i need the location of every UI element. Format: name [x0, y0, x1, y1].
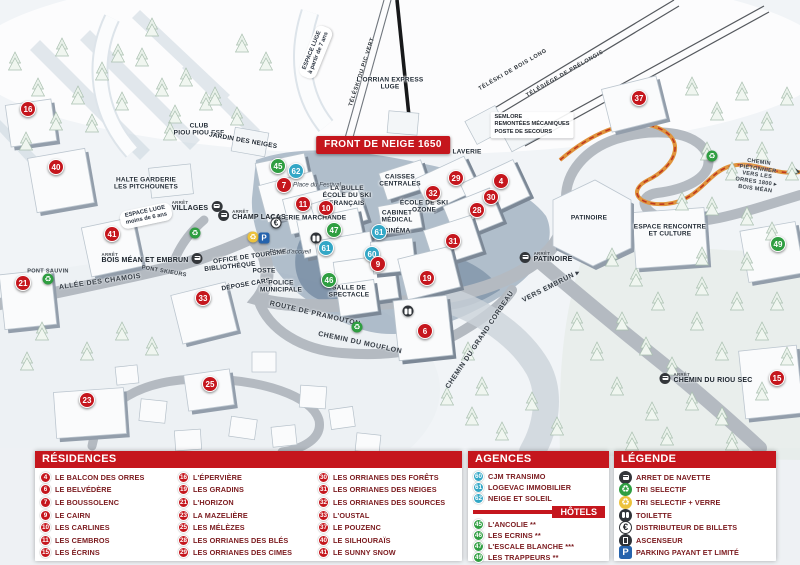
person-glyph [622, 512, 624, 518]
legend-item-label: LES TRAPPEURS ** [488, 553, 559, 562]
hotels-header-line [473, 510, 552, 514]
legend-item: 46LES ECRINS ** [473, 530, 605, 541]
bus-icon [520, 252, 531, 263]
map-label: L'ORRIAN EXPRESS LUGE [357, 77, 424, 92]
legend-item-label: L'HORIZON [193, 498, 234, 507]
marker-number: 45 [473, 519, 484, 530]
map-marker-61: 61 [318, 240, 334, 256]
map-marker-49: 49 [770, 236, 786, 252]
map-marker-16: 16 [20, 101, 36, 117]
map-label: HALTE GARDERIE LES PITCHOUNETS [114, 177, 178, 192]
legend-item-label: LE BALCON DES ORRES [55, 473, 144, 482]
resort-map-page: FRONT DE NEIGE 1650ESPACE LUGE à partir … [0, 0, 800, 565]
legend-item-label: LES ORRIANES DES BLÉS [193, 536, 288, 545]
marker-number: 25 [178, 522, 189, 533]
map-label: VERS EMBRUN ▸ [521, 268, 581, 304]
map-marker-21: 21 [15, 275, 31, 291]
map-label: JARDIN DES NEIGES [208, 131, 277, 150]
map-marker-4: 4 [493, 173, 509, 189]
map-marker-19: 19 [419, 270, 435, 286]
map-label: ESPACE RENCONTRE ET CULTURE [634, 224, 706, 239]
legend-item-label: LES ORRIANES DES SOURCES [333, 498, 445, 507]
map-label: LAVERIE [452, 148, 481, 155]
legend-item: 30LES ORRIANES DES FORÊTS [318, 471, 459, 484]
map-label: DÉPOSE CARS [221, 277, 271, 293]
marker-number: 41 [318, 547, 329, 558]
legend-item-label: LES ÉCRINS [55, 548, 100, 557]
map-marker-32: 32 [425, 185, 441, 201]
map-marker-10: 10 [318, 200, 334, 216]
map-label: ROUTE DE PRAMOUTON [269, 300, 361, 328]
map-label: CABINET MÉDICAL [381, 210, 412, 225]
map-label: CINÉMA [384, 227, 411, 234]
legend-item: 7LE BOUSSOLENC [40, 496, 178, 509]
map-label: Place d'accueil [269, 249, 311, 256]
recycle-icon: ♻ [619, 483, 632, 496]
bus-stop-label: PATINOIRE [534, 256, 573, 263]
legend-item: 15LES ÉCRINS [40, 547, 178, 560]
person-glyph [405, 308, 407, 314]
legend-item: 19LES GRADINS [178, 484, 318, 497]
map-marker-62: 62 [288, 163, 304, 179]
map-marker-15: 15 [769, 370, 785, 386]
marker-number: 31 [318, 484, 329, 495]
elevator-cab-glyph [623, 537, 628, 544]
legend-item-label: PARKING PAYANT ET LIMITÉ [636, 548, 739, 557]
recycle-icon: ♻ [43, 274, 54, 285]
map-label: POLICE MUNICIPALE [260, 280, 302, 295]
legend-item: 16L'ÉPERVIÈRE [178, 471, 318, 484]
bus-glyph [194, 256, 200, 261]
residences-column-2: 16L'ÉPERVIÈRE19LES GRADINS21L'HORIZON23L… [178, 471, 318, 559]
marker-number: 47 [473, 541, 484, 552]
legend-item-label: TRI SELECTIF [636, 485, 686, 494]
panel-residences-title: RÉSIDENCES [35, 451, 462, 468]
legend-item-label: L'OUSTAL [333, 511, 369, 520]
legend-item: PPARKING PAYANT ET LIMITÉ [619, 547, 772, 560]
marker-number: 61 [473, 482, 484, 493]
map-marker-47: 47 [326, 222, 342, 238]
bus-icon [218, 210, 229, 221]
map-marker-46: 46 [321, 272, 337, 288]
legend-item: 28LES ORRIANES DES BLÉS [178, 534, 318, 547]
legend-item: ASCENSEUR [619, 534, 772, 547]
recycle-icon: ♻ [352, 322, 363, 333]
map-marker-61: 61 [371, 224, 387, 240]
recycle-icon: ♻ [190, 228, 201, 239]
legend-item: 60CJM TRANSIMO [473, 471, 605, 482]
legend-item-label: LE CAIRN [55, 511, 90, 520]
legend-item-label: LES ORRIANES DES NEIGES [333, 485, 437, 494]
parking-icon: P [619, 546, 632, 559]
marker-number: 46 [473, 530, 484, 541]
panel-residences: RÉSIDENCES 4LE BALCON DES ORRES6LE BELVÉ… [35, 451, 462, 561]
map-label: FRONT DE NEIGE 1650 [316, 136, 450, 154]
bus-glyph [662, 376, 668, 381]
marker-number: 7 [40, 497, 51, 508]
legend-item: 4LE BALCON DES ORRES [40, 471, 178, 484]
bus-glyph [214, 204, 220, 209]
marker-number: 10 [40, 522, 51, 533]
bus-icon [211, 201, 222, 212]
legend-item-label: LES ORRIANES DES CIMES [193, 548, 292, 557]
legend-item: 25LES MÉLÈZES [178, 521, 318, 534]
bus-stop-caption: ARRÊT [172, 200, 209, 205]
hotels-header: HÔTELS [473, 506, 605, 518]
legend-item: 6LE BELVÉDÈRE [40, 484, 178, 497]
map-marker-31: 31 [445, 233, 461, 249]
map-label: ALLÉE DES CHAMOIS [59, 273, 142, 291]
map-label: OFFICE DE TOURISME [213, 248, 288, 266]
toilet-icon [619, 509, 632, 522]
map-marker-41: 41 [104, 226, 120, 242]
panel-legende: LÉGENDE ARRET DE NAVETTE♻TRI SELECTIF♻TR… [614, 451, 776, 561]
bus-icon [659, 373, 670, 384]
panel-agences-title: AGENCES IMMOBILIÈRES [468, 451, 609, 468]
legend-item-label: ARRET DE NAVETTE [636, 473, 710, 482]
legend-item-label: LES CEMBROS [55, 536, 110, 545]
map-marker-40: 40 [48, 159, 64, 175]
map-marker-9: 9 [370, 256, 386, 272]
map-label: BIBLIOTHÈQUE [204, 261, 256, 274]
map-label: POSTE [252, 267, 275, 274]
parking-icon: P [259, 233, 270, 244]
marker-number: 23 [178, 510, 189, 521]
bus-stop-caption: ARRÊT [232, 209, 286, 214]
hotels-list: 45L'ANCOLIE **46LES ECRINS **47L'ESCALE … [473, 519, 605, 564]
bus-glyph [522, 255, 528, 260]
legend-item: 41LE SUNNY SNOW [318, 547, 459, 560]
marker-number: 9 [40, 510, 51, 521]
residences-list: 4LE BALCON DES ORRES6LE BELVÉDÈRE7LE BOU… [35, 468, 462, 559]
legend-item-label: LES MÉLÈZES [193, 523, 245, 532]
legend-item: 37LE POUZENC [318, 521, 459, 534]
legend-item-label: LA MAZELIÈRE [193, 511, 248, 520]
legend-item: TOILETTE [619, 509, 772, 522]
map-label: SEMLORE REMONTÉES MÉCANIQUES POSTE DE SE… [491, 112, 574, 138]
marker-number: 62 [473, 493, 484, 504]
legend-item-label: LOGEVAC IMMOBILIER [488, 483, 571, 492]
bus-stop-caption: ARRÊT [101, 252, 188, 257]
legend-item-label: DISTRIBUTEUR DE BILLETS [636, 523, 737, 532]
legend-item-label: LES CARLINES [55, 523, 110, 532]
legend-item-label: TOILETTE [636, 511, 672, 520]
agences-list: 60CJM TRANSIMO61LOGEVAC IMMOBILIER62NEIG… [473, 471, 605, 505]
legend-item-label: NEIGE ET SOLEIL [488, 494, 552, 503]
legend-item-label: LE POUZENC [333, 523, 381, 532]
legend-item-label: L'ÉPERVIÈRE [193, 473, 242, 482]
marker-number: 32 [318, 497, 329, 508]
panel-agences-hotels: AGENCES IMMOBILIÈRES 60CJM TRANSIMO61LOG… [468, 451, 609, 561]
map-marker-6: 6 [417, 323, 433, 339]
legend-item: 49LES TRAPPEURS ** [473, 552, 605, 563]
legend-item: 31LES ORRIANES DES NEIGES [318, 484, 459, 497]
map-marker-30: 30 [483, 189, 499, 205]
bus-stop-text: ARRÊTCHEMIN DU RIOU SEC [673, 372, 752, 384]
map-marker-23: 23 [79, 392, 95, 408]
map-marker-37: 37 [631, 90, 647, 106]
legend-item-label: ASCENSEUR [636, 536, 683, 545]
legend-item: 33L'OUSTAL [318, 509, 459, 522]
marker-number: 33 [318, 510, 329, 521]
legend-item: 62NEIGE ET SOLEIL [473, 493, 605, 504]
map-label: TÉLÉSKI DU PIC VERT [348, 37, 376, 107]
marker-number: 40 [318, 535, 329, 546]
legend-item-label: LES ECRINS ** [488, 531, 541, 540]
atm-euro-icon: € [271, 218, 282, 229]
legend-item: 45L'ANCOLIE ** [473, 519, 605, 530]
recycle-icon: ♻ [707, 151, 718, 162]
bus-stop-text: ARRÊTBOIS MÉAN ET EMBRUN [101, 252, 188, 264]
map-label: CHEMIN DU MOUFLON [317, 331, 402, 356]
legende-list: ARRET DE NAVETTE♻TRI SELECTIF♻TRI SELECT… [614, 468, 776, 559]
elevator-icon [619, 534, 632, 547]
toilet-icon [403, 306, 414, 317]
panel-legende-title: LÉGENDE [614, 451, 776, 468]
person-glyph [317, 235, 319, 241]
map-label: PATINOIRE [571, 214, 607, 221]
legend-item-label: L'ANCOLIE ** [488, 520, 536, 529]
hotels-header-label: HÔTELS [552, 506, 605, 518]
legend-item-label: LE SILHOURAÏS [333, 536, 391, 545]
bus-stop-label: CHEMIN DU RIOU SEC [673, 377, 752, 384]
map-marker-33: 33 [195, 290, 211, 306]
marker-number: 4 [40, 472, 51, 483]
recycle-glass-icon: ♻ [619, 496, 632, 509]
marker-number: 21 [178, 497, 189, 508]
legend-item-label: LE SUNNY SNOW [333, 548, 396, 557]
marker-number: 49 [473, 552, 484, 563]
marker-number: 37 [318, 522, 329, 533]
bus-stop-text: ARRÊTVILLAGES [172, 200, 209, 212]
map-label: CHEMIN PIÉTONNIER VERS LES ORRES 1800 ▸ … [733, 156, 780, 195]
legend-item-label: LES ORRIANES DES FORÊTS [333, 473, 439, 482]
marker-number: 16 [178, 472, 189, 483]
legend-item-label: L'ESCALE BLANCHE *** [488, 542, 574, 551]
legend-item: ♻TRI SELECTIF + VERRE [619, 496, 772, 509]
map-marker-45: 45 [270, 158, 286, 174]
legend-item: ARRET DE NAVETTE [619, 471, 772, 484]
legend-item-label: LES GRADINS [193, 485, 244, 494]
map-label: CLUB PIOU PIOU ESF [174, 123, 225, 138]
person-glyph [313, 235, 315, 241]
marker-number: 11 [40, 535, 51, 546]
legend-item: 47L'ESCALE BLANCHE *** [473, 541, 605, 552]
marker-number: 15 [40, 547, 51, 558]
marker-number: 28 [178, 535, 189, 546]
map-label: SALLE DE SPECTACLE [329, 285, 370, 300]
map-label: ESPACE LUGE à partir de 7 ans [297, 23, 335, 80]
atm-euro-icon: € [619, 521, 632, 534]
map-label: ESPACE LUGE moins de 6 ans [119, 202, 174, 231]
bus-stop-bois-m-an-et-embrun: ARRÊTBOIS MÉAN ET EMBRUN [101, 252, 202, 264]
bus-stop-label: VILLAGES [172, 205, 209, 212]
legend-item: €DISTRIBUTEUR DE BILLETS [619, 521, 772, 534]
legend-item: 29LES ORRIANES DES CIMES [178, 547, 318, 560]
legend-item-label: LE BOUSSOLENC [55, 498, 119, 507]
residences-column-3: 30LES ORRIANES DES FORÊTS31LES ORRIANES … [318, 471, 459, 559]
bus-glyph [221, 213, 227, 218]
map-label: TÉLÉSIÈGE DE PRÉLONGIS [525, 49, 605, 98]
bus-stop-text: ARRÊTPATINOIRE [534, 251, 573, 263]
bus-icon [192, 253, 203, 264]
legend-item: 23LA MAZELIÈRE [178, 509, 318, 522]
marker-number: 6 [40, 484, 51, 495]
bus-stop-patinoire: ARRÊTPATINOIRE [520, 251, 573, 263]
legend-item: ♻TRI SELECTIF [619, 484, 772, 497]
map-label: TÉLÉSKI DE BOIS LONG [478, 48, 548, 92]
bus-icon [619, 471, 632, 484]
map-marker-7: 7 [276, 177, 292, 193]
bus-stop-chemin-du-riou-sec: ARRÊTCHEMIN DU RIOU SEC [659, 372, 752, 384]
map-label: CHEMIN DU GRAND CORBEAU [445, 290, 516, 390]
map-label: ÉCOLE DE SKI OZONE [400, 200, 448, 215]
legend-item: 40LE SILHOURAÏS [318, 534, 459, 547]
bus-stop-villages: ARRÊTVILLAGES [172, 200, 223, 212]
legend-item: 9LE CAIRN [40, 509, 178, 522]
legend-item: 11LES CEMBROS [40, 534, 178, 547]
marker-number: 30 [318, 472, 329, 483]
person-glyph [626, 512, 628, 518]
legend-item: 21L'HORIZON [178, 496, 318, 509]
bus-stop-caption: ARRÊT [534, 251, 573, 256]
marker-number: 29 [178, 547, 189, 558]
map-label: PONT SKIEURS [141, 265, 187, 280]
residences-column-1: 4LE BALCON DES ORRES6LE BELVÉDÈRE7LE BOU… [40, 471, 178, 559]
legend-item: 61LOGEVAC IMMOBILIER [473, 482, 605, 493]
map-marker-29: 29 [448, 170, 464, 186]
map-marker-11: 11 [295, 196, 311, 212]
map-label: CAISSES CENTRALES [379, 174, 421, 189]
bus-stop-caption: ARRÊT [673, 372, 752, 377]
legend-item: 32LES ORRIANES DES SOURCES [318, 496, 459, 509]
legend-item-label: TRI SELECTIF + VERRE [636, 498, 721, 507]
bus-stop-label: BOIS MÉAN ET EMBRUN [101, 257, 188, 264]
legend-item: 10LES CARLINES [40, 521, 178, 534]
legend-item-label: CJM TRANSIMO [488, 472, 546, 481]
legend-item-label: LE BELVÉDÈRE [55, 485, 112, 494]
recycle-glass-icon: ♻ [248, 232, 259, 243]
person-glyph [409, 308, 411, 314]
bus-glyph [623, 475, 629, 480]
map-marker-25: 25 [202, 376, 218, 392]
map-marker-28: 28 [469, 202, 485, 218]
marker-number: 19 [178, 484, 189, 495]
map-label: Place du Festival [293, 182, 341, 189]
